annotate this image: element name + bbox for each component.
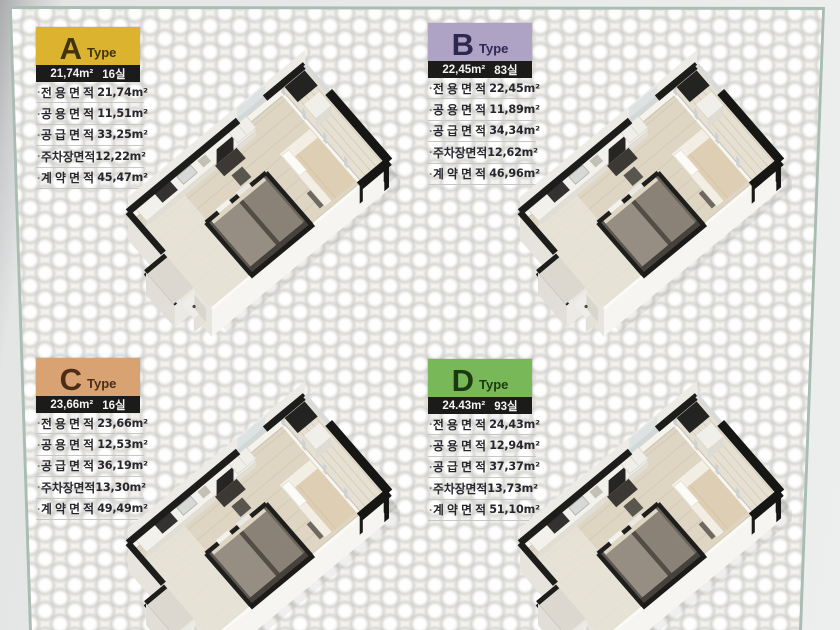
unit-type-letter: A <box>60 36 82 62</box>
area-label: 주차장면적 <box>41 479 95 496</box>
floor-plan-isometric-d <box>492 376 792 630</box>
floor-plan-isometric-c <box>100 376 400 630</box>
brochure-photo: A Type 21,74m² 16실 ·전용면적21,74m² ·공용면적11,… <box>0 0 840 630</box>
floor-plan-isometric-b <box>492 45 792 345</box>
area-label: 전용면적 <box>41 84 97 101</box>
area-label: 계약면적 <box>433 165 489 182</box>
area-label: 공급면적 <box>41 457 97 474</box>
area-label: 계약면적 <box>433 501 489 518</box>
unit-type-letter: C <box>60 367 82 393</box>
area-label: 계약면적 <box>41 500 97 517</box>
unit-type-letter: D <box>452 368 474 394</box>
area-label: 공급면적 <box>41 126 97 143</box>
area-label: 공급면적 <box>433 122 489 139</box>
area-label: 전용면적 <box>433 80 489 97</box>
area-label: 전용면적 <box>433 416 489 433</box>
unit-bar-area: 23,66m² <box>50 399 93 411</box>
area-label: 공용면적 <box>433 437 489 454</box>
area-label: 공용면적 <box>41 105 97 122</box>
floor-plan-isometric-a <box>100 45 400 345</box>
area-label: 계약면적 <box>41 169 97 186</box>
unit-bar-area: 22,45m² <box>442 64 485 76</box>
unit-bar-area: 21,74m² <box>50 68 93 80</box>
area-label: 공용면적 <box>41 436 97 453</box>
area-label: 주차장면적 <box>433 144 487 161</box>
area-label: 공급면적 <box>433 458 489 475</box>
area-label: 주차장면적 <box>433 480 487 497</box>
unit-bar-area: 24.43m² <box>442 400 485 412</box>
area-label: 공용면적 <box>433 101 489 118</box>
area-label: 주차장면적 <box>41 148 95 165</box>
unit-type-letter: B <box>452 32 474 58</box>
area-label: 전용면적 <box>41 415 97 432</box>
